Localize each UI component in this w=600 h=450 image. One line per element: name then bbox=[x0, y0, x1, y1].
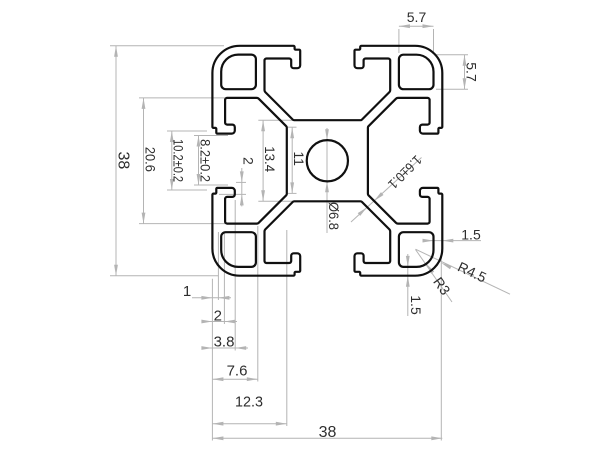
svg-text:5.7: 5.7 bbox=[463, 62, 479, 82]
svg-text:5.7: 5.7 bbox=[407, 9, 427, 25]
svg-text:12.3: 12.3 bbox=[235, 393, 263, 410]
svg-text:1.5: 1.5 bbox=[408, 295, 424, 315]
svg-text:7.6: 7.6 bbox=[227, 363, 248, 380]
svg-text:10.2±0.2: 10.2±0.2 bbox=[171, 139, 187, 182]
svg-text:1: 1 bbox=[183, 283, 191, 300]
svg-text:2: 2 bbox=[241, 157, 257, 165]
svg-text:1.5: 1.5 bbox=[461, 227, 481, 243]
svg-text:11: 11 bbox=[291, 151, 307, 166]
svg-text:13.4: 13.4 bbox=[262, 146, 278, 172]
svg-text:38: 38 bbox=[319, 424, 337, 441]
svg-text:Ø6.8: Ø6.8 bbox=[326, 202, 342, 230]
svg-text:20.6: 20.6 bbox=[142, 147, 158, 172]
svg-text:8.2±0.2: 8.2±0.2 bbox=[197, 139, 213, 182]
svg-text:2: 2 bbox=[214, 307, 222, 324]
svg-text:38: 38 bbox=[114, 152, 131, 170]
svg-text:3.8: 3.8 bbox=[214, 334, 235, 351]
